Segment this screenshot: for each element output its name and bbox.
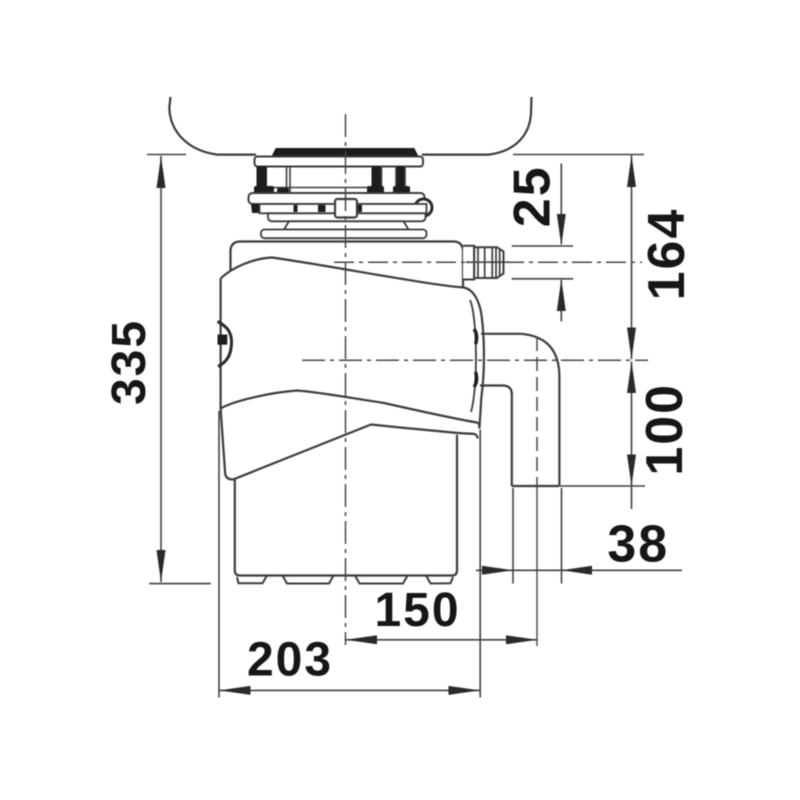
svg-text:100: 100 <box>636 383 694 476</box>
svg-text:25: 25 <box>504 165 562 227</box>
svg-text:335: 335 <box>103 319 156 405</box>
svg-text:203: 203 <box>247 634 333 687</box>
svg-text:150: 150 <box>374 584 460 637</box>
svg-text:164: 164 <box>638 208 696 301</box>
svg-text:38: 38 <box>607 516 669 574</box>
